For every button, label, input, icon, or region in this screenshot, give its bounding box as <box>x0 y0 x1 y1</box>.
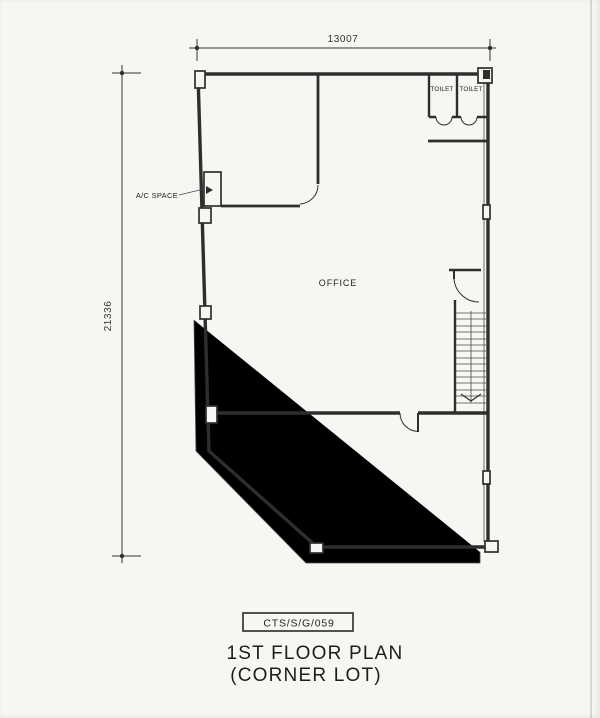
column-block <box>310 543 323 553</box>
office-label: OFFICE <box>319 278 357 288</box>
ac-space: A/C SPACE <box>136 172 221 206</box>
column-core <box>483 70 490 79</box>
floor-plan-drawing: 13007 21336 A/C SPACE <box>0 0 600 718</box>
column-block <box>199 208 211 223</box>
door-swing-arc-icon <box>300 185 318 204</box>
ref-code-label: CTS/S/G/059 <box>263 618 334 630</box>
column-block <box>195 71 205 88</box>
dimension-height-ticks <box>112 73 141 556</box>
staircase <box>449 270 486 412</box>
exterior-offset-line <box>194 320 480 563</box>
toilets: TOILET TOILET <box>428 75 487 141</box>
plan-title-line1: 1ST FLOOR PLAN <box>227 643 404 664</box>
floor-plan-page: 13007 21336 A/C SPACE <box>0 0 600 718</box>
dimension-height: 21336 <box>103 65 141 563</box>
front-room <box>221 74 318 206</box>
column-block <box>206 406 217 423</box>
toilet-walls <box>429 75 457 117</box>
rear-door-arc-icon <box>400 413 418 432</box>
column-block <box>483 205 490 219</box>
dimension-end-dot <box>488 46 492 50</box>
dimension-end-dot <box>120 71 124 75</box>
stair-door-arc-icon <box>454 278 479 302</box>
dimension-width-label: 13007 <box>328 34 359 45</box>
dimension-height-label: 21336 <box>103 301 114 332</box>
dimension-end-dot <box>120 554 124 558</box>
ac-space-label: A/C SPACE <box>136 191 178 200</box>
column-block <box>200 306 211 319</box>
toilet-right-label: TOILET <box>459 86 482 93</box>
plan-title-line2: (CORNER LOT) <box>230 665 382 686</box>
column-block <box>483 471 490 484</box>
footer: CTS/S/G/059 1ST FLOOR PLAN (CORNER LOT) <box>227 613 404 686</box>
column-block <box>485 541 498 552</box>
dimension-width: 13007 <box>189 34 496 61</box>
toilet-left-label: TOILET <box>430 86 453 93</box>
dimension-end-dot <box>195 46 199 50</box>
